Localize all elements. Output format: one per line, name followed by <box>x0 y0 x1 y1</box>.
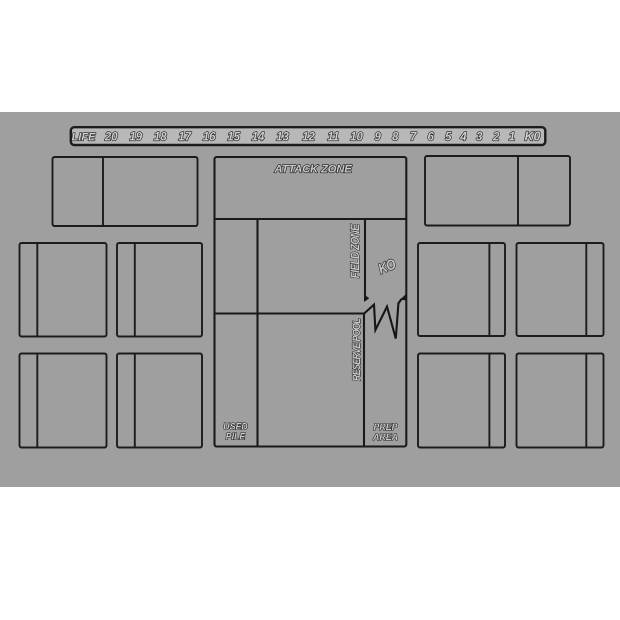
svg-text:1: 1 <box>509 131 515 143</box>
svg-text:12: 12 <box>302 131 315 143</box>
svg-text:7: 7 <box>410 131 417 143</box>
svg-text:14: 14 <box>252 131 265 143</box>
svg-text:17: 17 <box>178 131 191 143</box>
svg-text:K0: K0 <box>525 130 541 144</box>
svg-text:PREP: PREP <box>374 422 398 432</box>
svg-text:6: 6 <box>427 131 434 143</box>
svg-text:15: 15 <box>227 131 240 143</box>
svg-text:AREA: AREA <box>372 432 398 442</box>
svg-text:10: 10 <box>350 131 363 143</box>
svg-text:PILE: PILE <box>226 432 247 442</box>
svg-text:3: 3 <box>476 131 483 143</box>
svg-text:RESERVE POOL: RESERVE POOL <box>351 318 363 380</box>
svg-text:LIFE: LIFE <box>72 131 96 143</box>
svg-text:5: 5 <box>445 131 452 143</box>
svg-text:USED: USED <box>223 422 248 432</box>
svg-text:FIELD ZONE: FIELD ZONE <box>349 223 362 278</box>
svg-text:16: 16 <box>203 131 216 143</box>
svg-text:ATTACK ZONE: ATTACK ZONE <box>273 163 352 175</box>
svg-text:8: 8 <box>392 131 399 143</box>
svg-text:11: 11 <box>327 131 339 143</box>
svg-text:19: 19 <box>129 131 142 143</box>
svg-text:18: 18 <box>154 131 167 143</box>
svg-text:4: 4 <box>459 131 467 143</box>
svg-text:9: 9 <box>374 131 381 143</box>
svg-text:13: 13 <box>276 131 289 143</box>
svg-text:2: 2 <box>492 131 500 143</box>
svg-text:20: 20 <box>104 131 118 143</box>
